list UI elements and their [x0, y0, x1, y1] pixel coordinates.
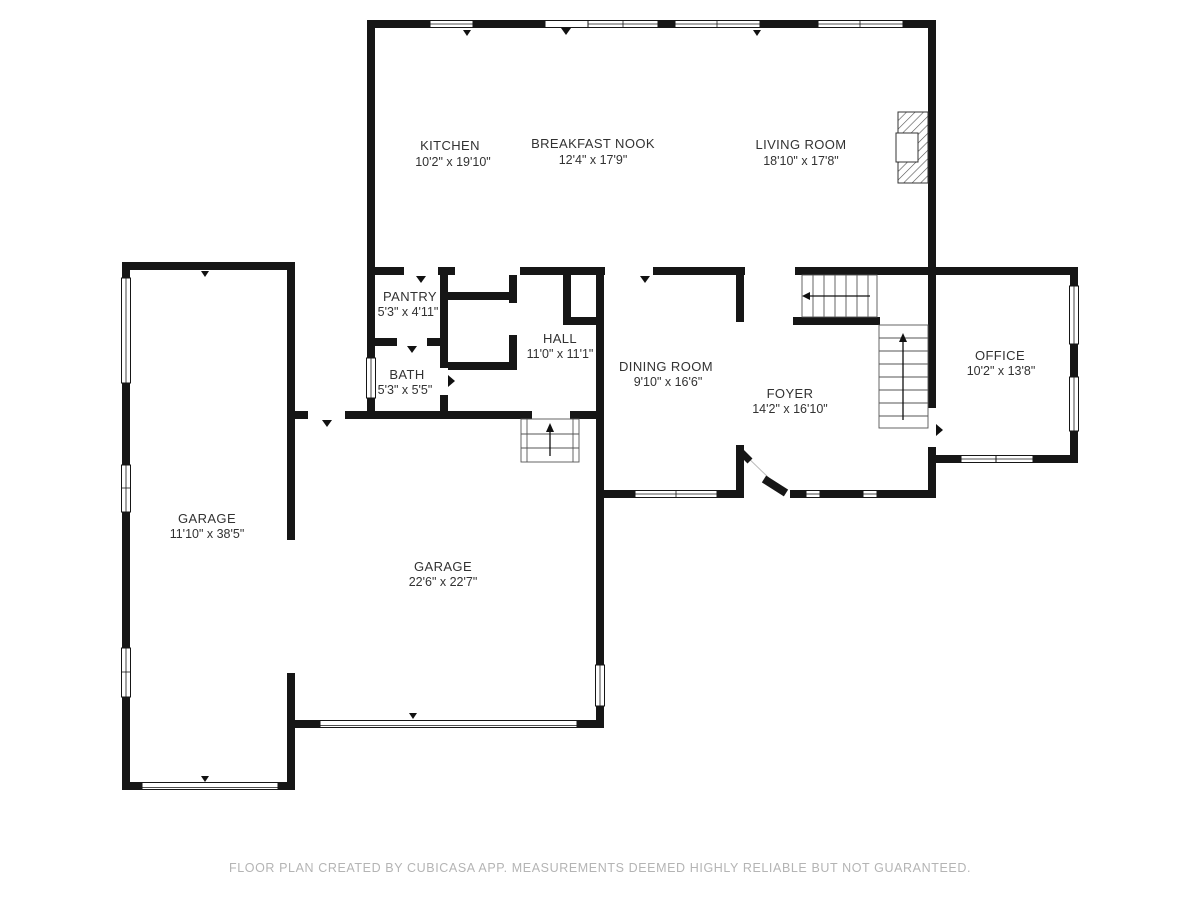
window — [1070, 377, 1079, 431]
footer-disclaimer: FLOOR PLAN CREATED BY CUBICASA APP. MEAS… — [229, 861, 971, 875]
window — [588, 21, 658, 28]
foyer-dims: 14'2" x 16'10" — [752, 402, 828, 416]
window — [961, 456, 996, 463]
dining-room-dims: 9'10" x 16'6" — [634, 375, 703, 389]
bath-dims: 5'3" x 5'5" — [378, 383, 433, 397]
window — [122, 465, 131, 512]
garage-door — [320, 721, 577, 728]
hall-dims: 11'0" x 11'1" — [527, 347, 594, 361]
garage-left-dims: 11'10" x 38'5" — [170, 527, 245, 541]
garage-door — [142, 783, 278, 790]
breakfast-nook-dims: 12'4" x 17'9" — [559, 153, 628, 167]
office-label: OFFICE — [975, 348, 1025, 363]
window — [122, 278, 131, 383]
living-room-label: LIVING ROOM — [755, 137, 846, 152]
office-dims: 10'2" x 13'8" — [967, 364, 1036, 378]
living-room-dims: 18'10" x 17'8" — [763, 154, 839, 168]
window — [430, 21, 473, 28]
window — [818, 21, 903, 28]
window — [1070, 286, 1079, 344]
window — [367, 358, 376, 398]
bath-label: BATH — [389, 367, 424, 382]
floor-plan-page: KITCHEN 10'2" x 19'10" BREAKFAST NOOK 12… — [0, 0, 1200, 900]
breakfast-nook-label: BREAKFAST NOOK — [531, 136, 655, 151]
garage-left-label: GARAGE — [178, 511, 236, 526]
fireplace-icon — [896, 112, 928, 183]
window — [806, 491, 820, 498]
window — [635, 491, 717, 498]
garage-main-dims: 22'6" x 22'7" — [409, 575, 478, 589]
foyer-label: FOYER — [767, 386, 814, 401]
window — [596, 665, 605, 706]
hall-label: HALL — [543, 331, 577, 346]
garage-main-label: GARAGE — [414, 559, 472, 574]
staircase-garage-entry — [521, 419, 579, 462]
window — [996, 456, 1033, 463]
floor-plan-drawing: KITCHEN 10'2" x 19'10" BREAKFAST NOOK 12… — [0, 0, 1200, 900]
kitchen-dims: 10'2" x 19'10" — [415, 155, 491, 169]
window — [675, 21, 760, 28]
window — [122, 648, 131, 697]
patio-door — [545, 21, 588, 28]
window — [863, 491, 877, 498]
pantry-label: PANTRY — [383, 289, 437, 304]
dining-room-label: DINING ROOM — [619, 359, 713, 374]
kitchen-label: KITCHEN — [420, 138, 480, 153]
pantry-dims: 5'3" x 4'11" — [378, 305, 439, 319]
front-door — [739, 450, 786, 493]
